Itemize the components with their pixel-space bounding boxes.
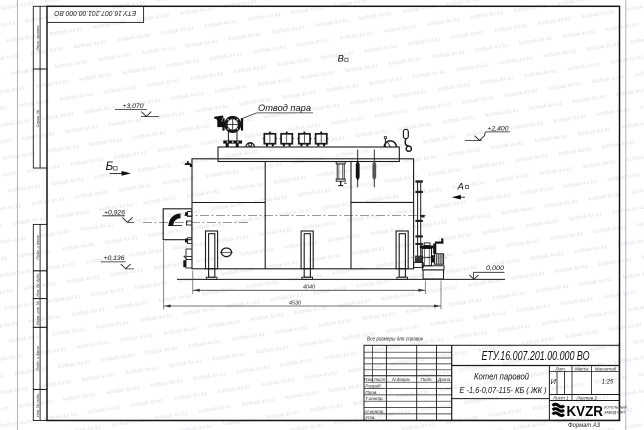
svg-text:4040: 4040: [303, 285, 315, 291]
svg-text:Разраб.: Разраб.: [365, 383, 382, 388]
svg-text:1:25: 1:25: [602, 380, 614, 386]
svg-text:Подп. и дата: Подп. и дата: [35, 235, 40, 260]
svg-text:Пров.: Пров.: [365, 390, 377, 395]
svg-text:Все размеры для справок: Все размеры для справок: [367, 337, 423, 343]
svg-text:КОТЕЛЬНЫЙ: КОТЕЛЬНЫЙ: [604, 406, 627, 410]
svg-text:+2,400: +2,400: [488, 126, 510, 133]
svg-text:Отвод пара: Отвод пара: [258, 103, 311, 114]
svg-text:Перв. примен.: Перв. примен.: [35, 25, 40, 51]
svg-text:Б: Б: [106, 159, 114, 173]
svg-text:Н.контр.: Н.контр.: [365, 409, 384, 414]
svg-text:+0,136: +0,136: [104, 255, 126, 262]
svg-text:Масштаб: Масштаб: [595, 366, 617, 371]
svg-text:Лист 1: Лист 1: [552, 395, 569, 400]
svg-text:ЕТУ.16.007.201.00.000 ВО: ЕТУ.16.007.201.00.000 ВО: [482, 348, 590, 363]
svg-text:И: И: [551, 377, 557, 386]
svg-text:Масса: Масса: [575, 366, 589, 371]
svg-text:ЗАВОД РЭП: ЗАВОД РЭП: [604, 411, 625, 415]
svg-text:Лист: Лист: [372, 377, 385, 382]
svg-text:Утв.: Утв.: [365, 415, 375, 420]
svg-text:Изм: Изм: [364, 377, 373, 382]
svg-text:0,000: 0,000: [486, 265, 505, 272]
svg-text:Лит.: Лит.: [554, 366, 566, 371]
svg-text:Листов 2: Листов 2: [576, 395, 598, 400]
svg-text:4530: 4530: [289, 300, 301, 306]
svg-text:+3,070: +3,070: [123, 103, 145, 110]
svg-text:Котел паровой: Котел паровой: [474, 372, 530, 383]
svg-text:Дата: Дата: [437, 377, 451, 382]
svg-text:KVZR: KVZR: [567, 404, 604, 420]
svg-text:Подп. и дата: Подп. и дата: [35, 345, 40, 370]
svg-text:N докум.: N докум.: [392, 377, 411, 382]
svg-text:Т.контр.: Т.контр.: [365, 396, 384, 401]
svg-text:Инв. № дубл.: Инв. № дубл.: [35, 273, 40, 297]
svg-text:Взам. инв. №: Взам. инв. №: [35, 300, 40, 325]
svg-text:Справ. №: Справ. №: [35, 109, 40, 127]
svg-text:Инв. № подл.: Инв. № подл.: [35, 393, 40, 417]
svg-text:А: А: [457, 182, 464, 193]
svg-text:Формат А3: Формат А3: [568, 422, 601, 429]
svg-text:В: В: [338, 54, 345, 65]
svg-text:Подп.: Подп.: [420, 377, 432, 382]
svg-text:ЕТУ.16.007.201.00.000 ВО: ЕТУ.16.007.201.00.000 ВО: [54, 9, 136, 18]
svg-text:Е -1,6-0,07-115- КБ ( ЖК ): Е -1,6-0,07-115- КБ ( ЖК ): [460, 385, 547, 395]
